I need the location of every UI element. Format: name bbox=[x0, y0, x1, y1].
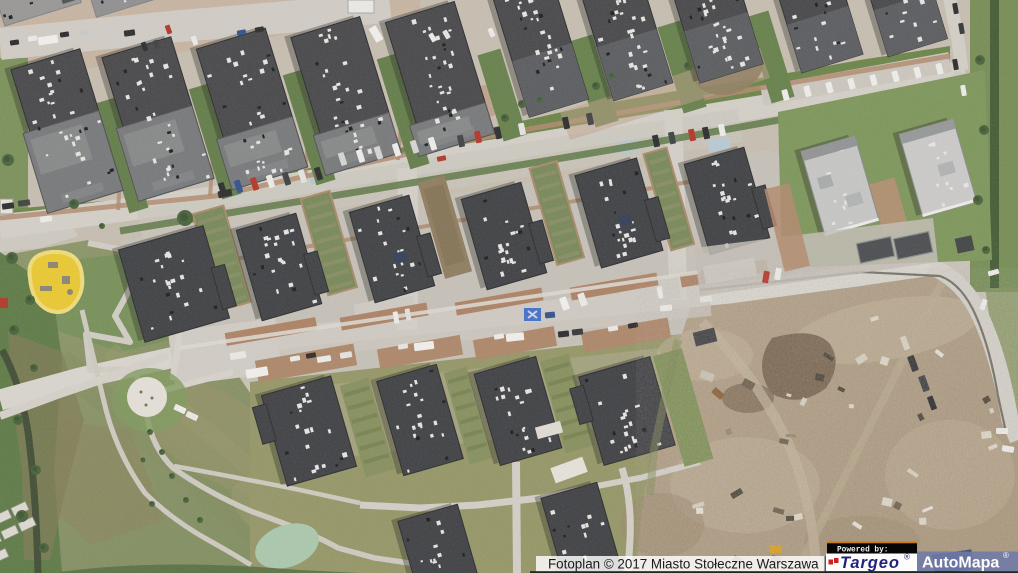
svg-text:Targeo: Targeo bbox=[840, 554, 900, 572]
svg-text:®: ® bbox=[1003, 551, 1009, 560]
svg-text:Fotoplan © 2017 Miasto Stołecz: Fotoplan © 2017 Miasto Stołeczne Warszaw… bbox=[548, 557, 819, 572]
svg-text:®: ® bbox=[904, 553, 910, 562]
svg-text:AutoMapa: AutoMapa bbox=[922, 555, 999, 572]
